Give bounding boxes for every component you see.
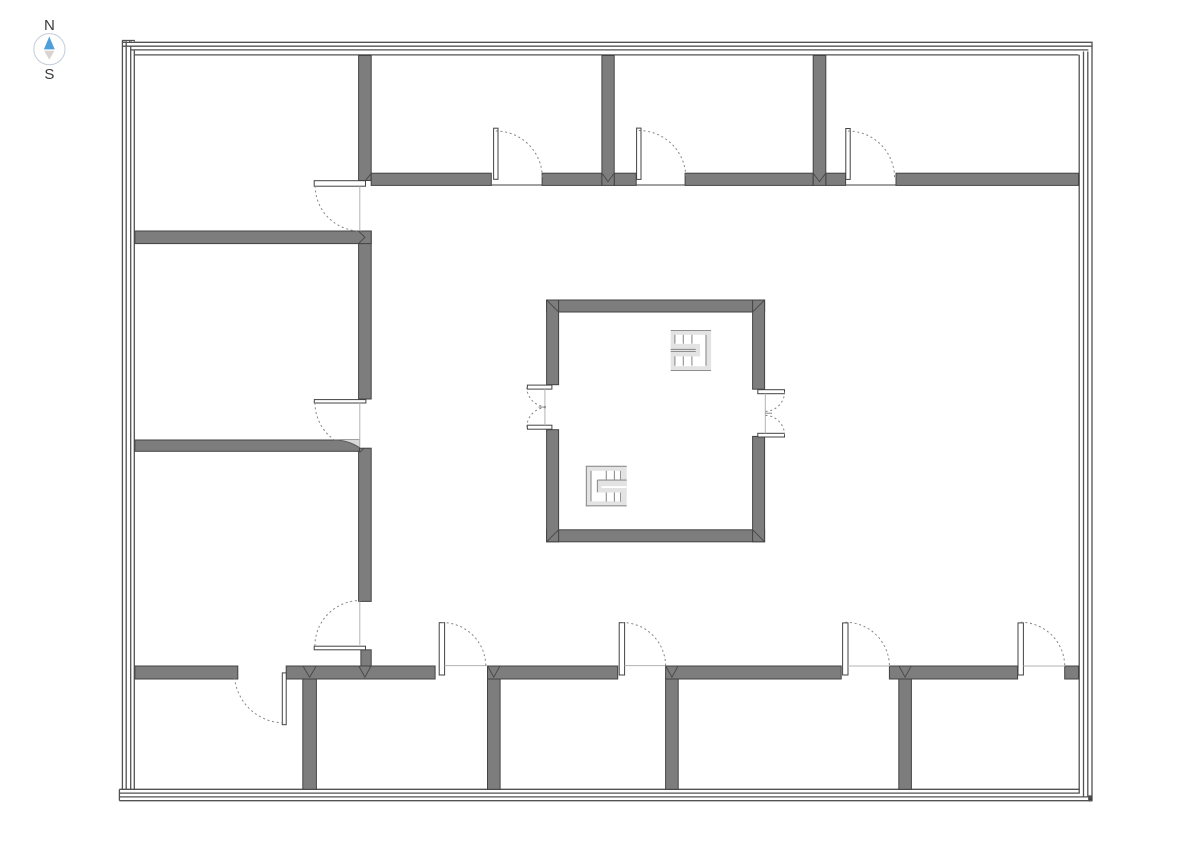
svg-text:S: S bbox=[44, 66, 54, 83]
svg-text:N: N bbox=[44, 17, 55, 34]
